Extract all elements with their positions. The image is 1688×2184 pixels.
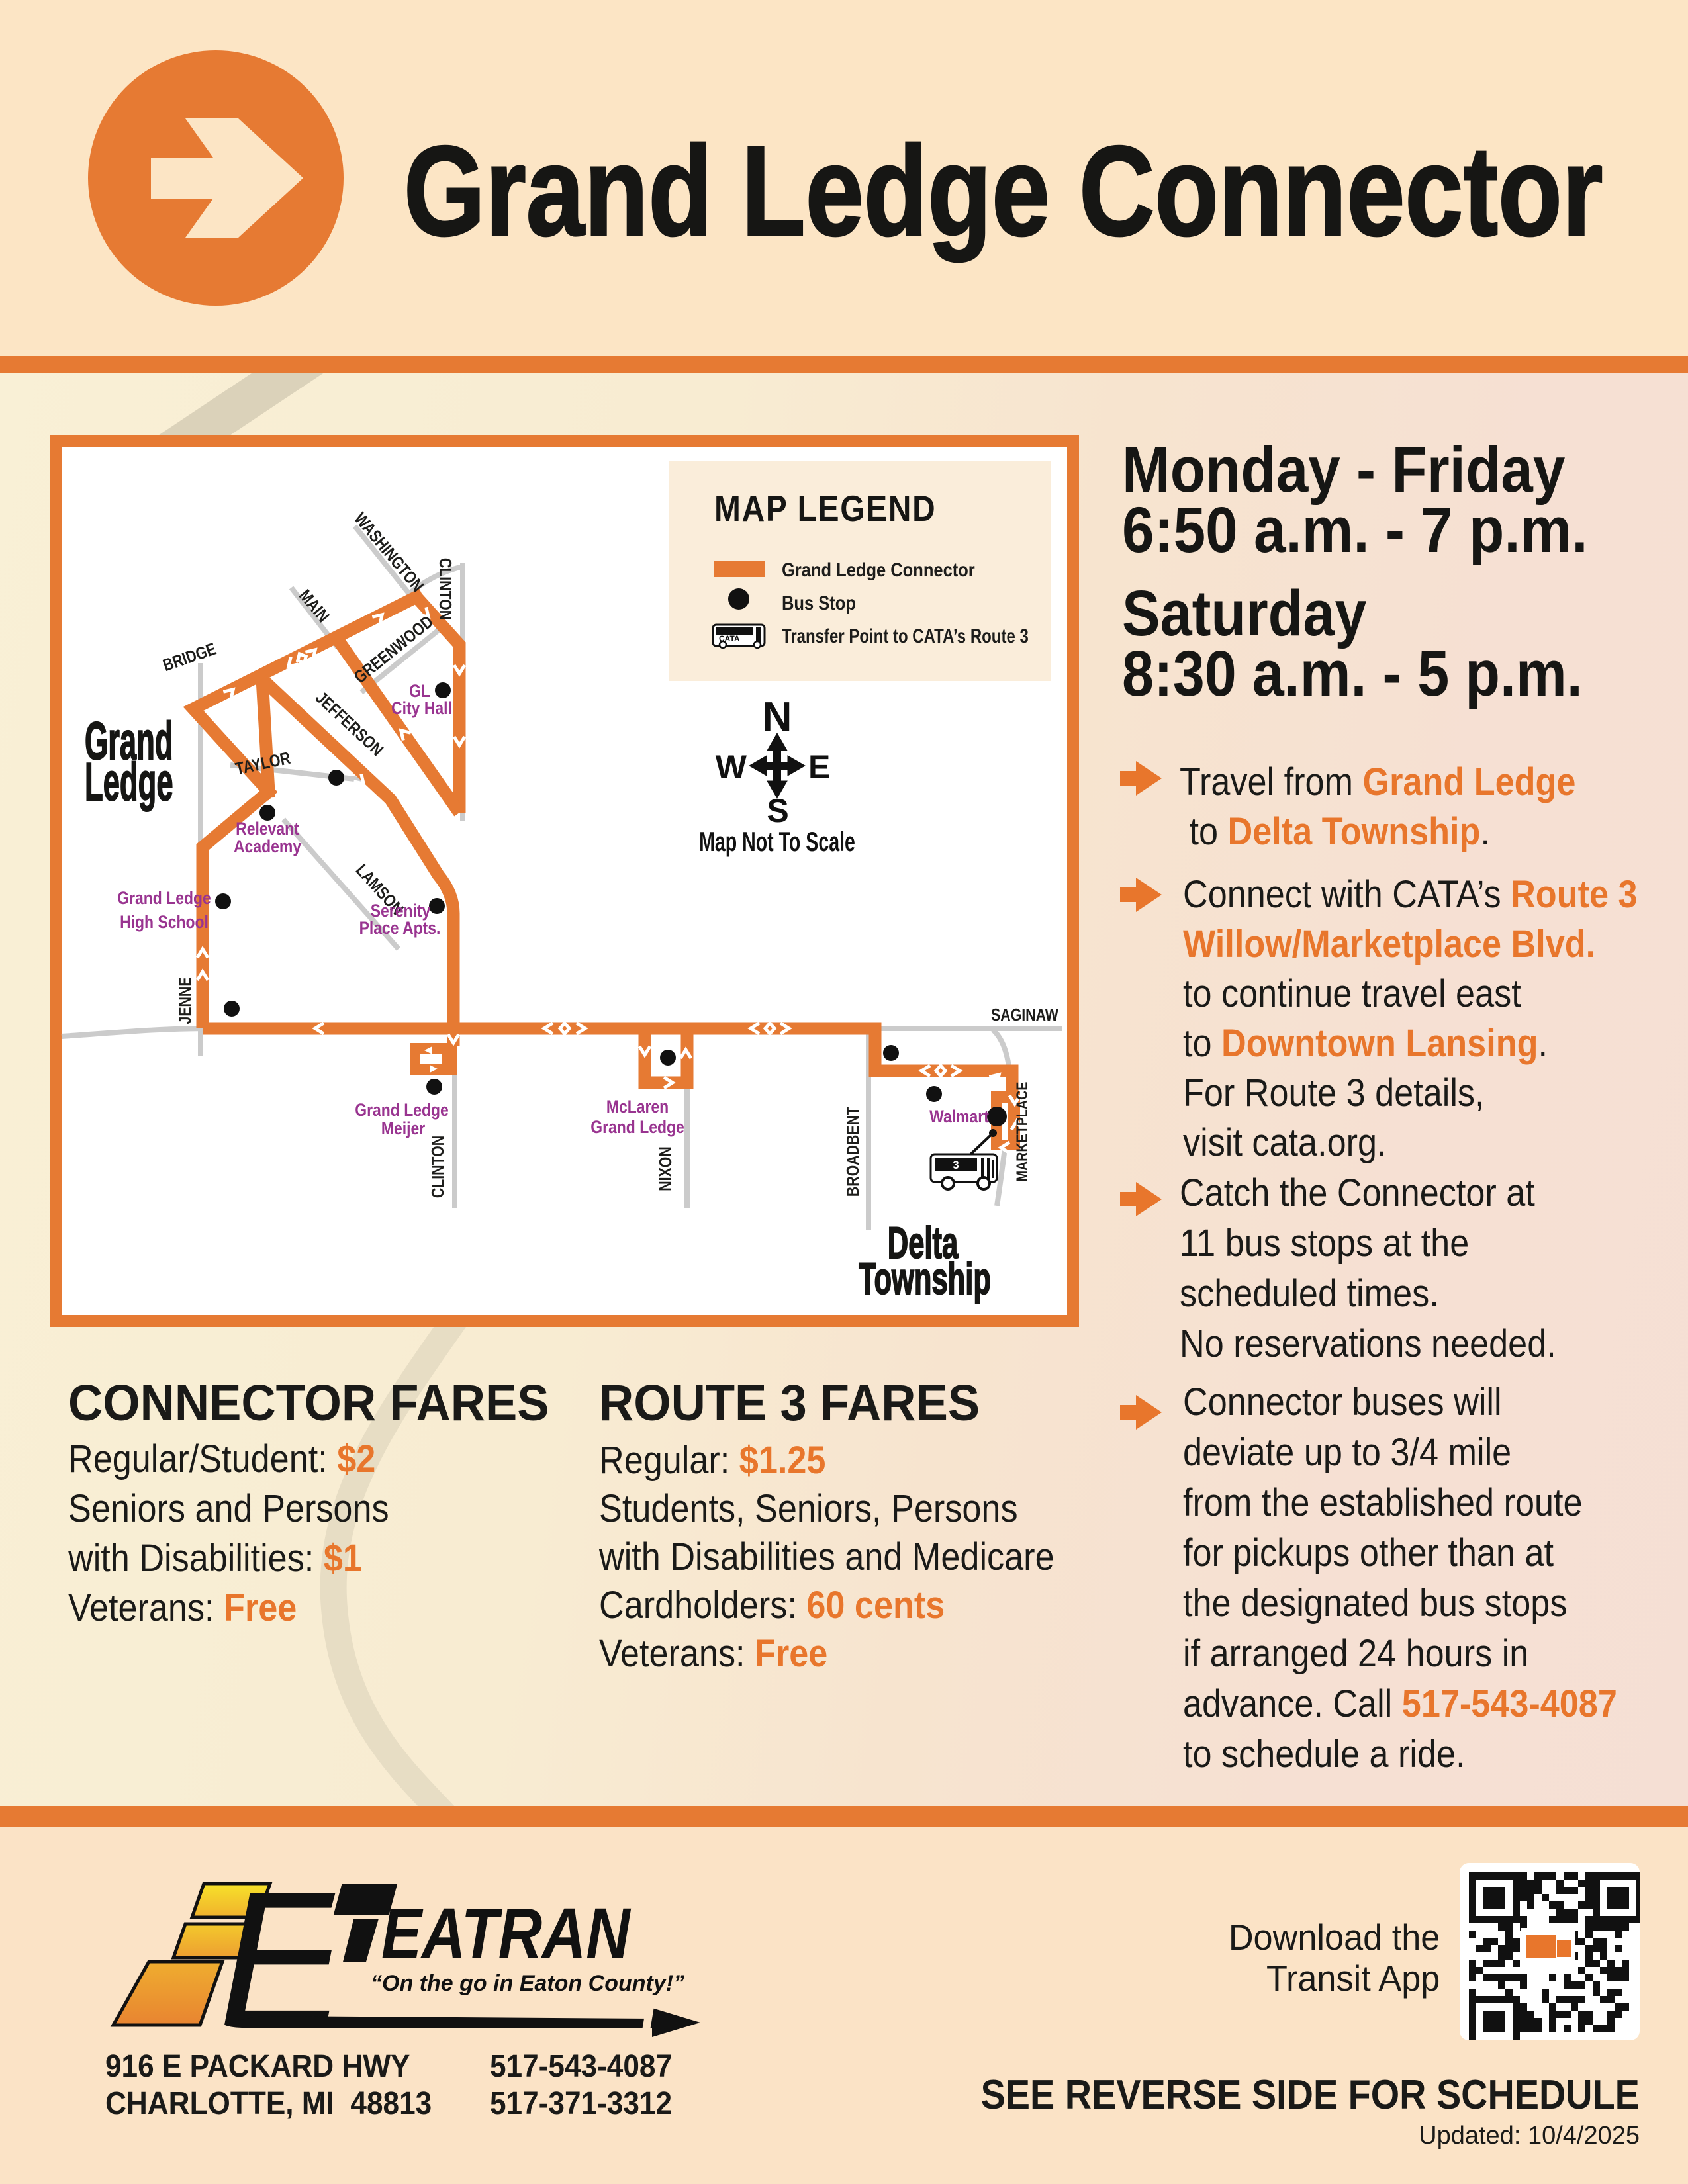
- svg-text:3: 3: [953, 1159, 959, 1171]
- svg-text:CLINTON: CLINTON: [435, 558, 455, 620]
- svg-text:BROADBENT: BROADBENT: [843, 1106, 863, 1197]
- svg-text:E: E: [808, 749, 830, 786]
- svg-text:Walmart: Walmart: [929, 1107, 989, 1126]
- svg-text:S: S: [767, 792, 788, 829]
- svg-text:W: W: [716, 749, 747, 786]
- svg-text:N: N: [763, 694, 792, 740]
- svg-text:Grand Ledge: Grand Ledge: [590, 1117, 684, 1137]
- svg-text:CLINTON: CLINTON: [428, 1136, 448, 1198]
- svg-text:SAGINAW: SAGINAW: [991, 1005, 1058, 1025]
- svg-text:High School: High School: [120, 912, 209, 932]
- svg-text:Grand Ledge: Grand Ledge: [355, 1100, 449, 1120]
- svg-text:Grand Ledge: Grand Ledge: [117, 888, 211, 908]
- svg-text:Relevant: Relevant: [236, 819, 299, 839]
- svg-text:City Hall: City Hall: [391, 698, 452, 718]
- svg-text:Ledge: Ledge: [85, 752, 173, 811]
- svg-text:Grand Ledge Connector: Grand Ledge Connector: [782, 559, 975, 580]
- svg-text:“On the go in Eaton County!”: “On the go in Eaton County!”: [371, 1971, 684, 1996]
- svg-text:Map Not To Scale: Map Not To Scale: [699, 825, 855, 857]
- svg-text:Academy: Academy: [234, 837, 301, 856]
- svg-text:NIXON: NIXON: [656, 1146, 676, 1191]
- svg-text:Township: Township: [859, 1253, 991, 1304]
- svg-text:Meijer: Meijer: [381, 1118, 426, 1138]
- svg-text:JENNE: JENNE: [175, 977, 195, 1024]
- svg-text:Bus Stop: Bus Stop: [782, 592, 856, 614]
- svg-text:EATRAN: EATRAN: [381, 1893, 632, 1974]
- svg-text:E: E: [218, 1866, 350, 2038]
- svg-text:McLaren: McLaren: [606, 1097, 669, 1116]
- svg-text:MAP LEGEND: MAP LEGEND: [714, 488, 936, 529]
- svg-text:MARKETPLACE: MARKETPLACE: [1013, 1082, 1031, 1182]
- svg-text:Transfer Point to CATA’s Route: Transfer Point to CATA’s Route 3: [782, 624, 1029, 647]
- svg-text:Place Apts.: Place Apts.: [359, 918, 441, 938]
